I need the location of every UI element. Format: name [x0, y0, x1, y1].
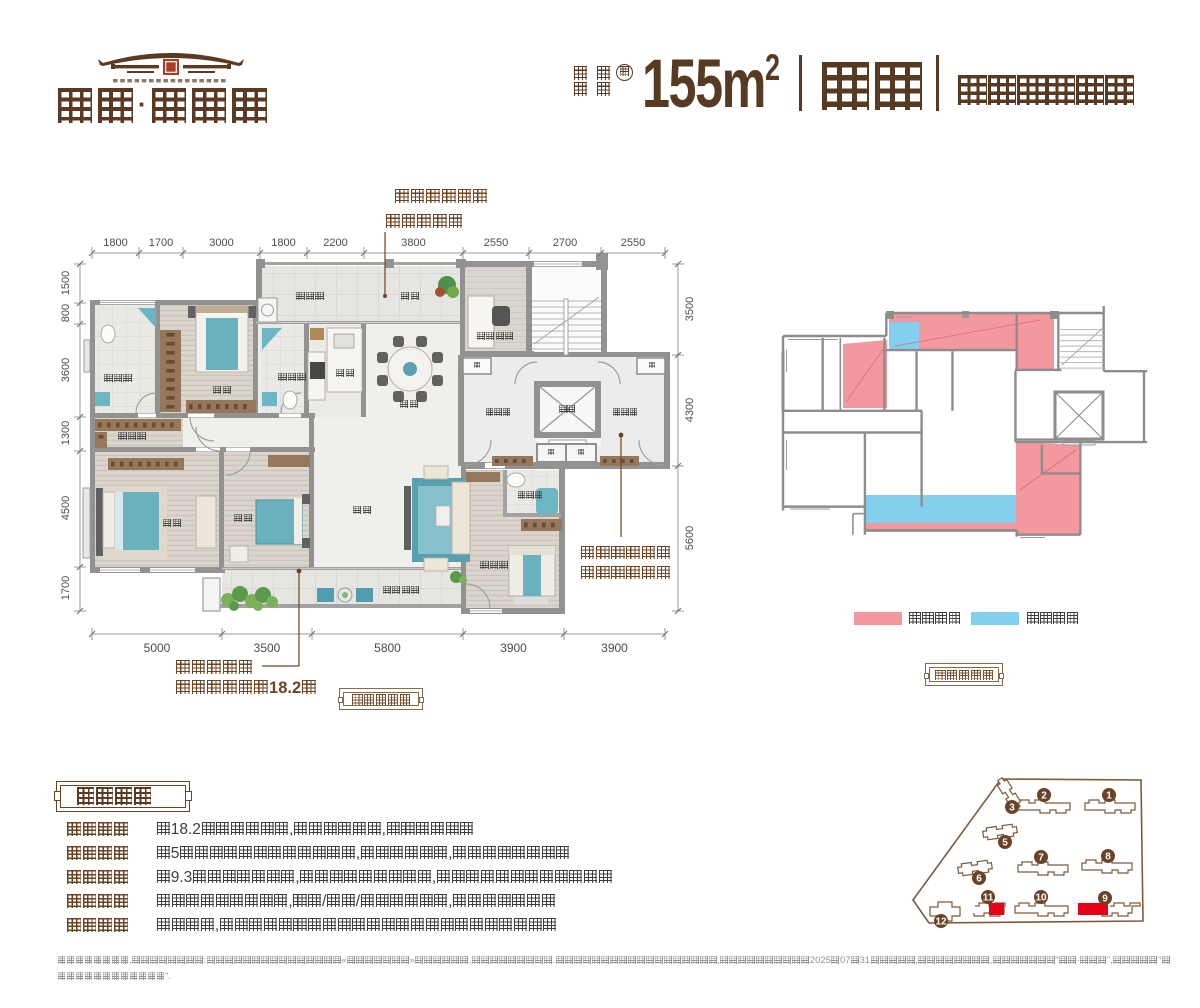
svg-text:1: 1 [1106, 790, 1112, 801]
svg-text:9: 9 [1102, 893, 1108, 904]
svg-text:11: 11 [983, 892, 994, 903]
svg-text:6: 6 [976, 873, 982, 884]
svg-text:2: 2 [1041, 790, 1047, 801]
svg-text:3: 3 [1009, 802, 1015, 813]
svg-text:12: 12 [935, 916, 947, 927]
svg-text:10: 10 [1035, 892, 1047, 903]
svg-text:8: 8 [1105, 851, 1111, 862]
svg-text:7: 7 [1038, 852, 1044, 863]
svg-text:5: 5 [1002, 837, 1008, 848]
